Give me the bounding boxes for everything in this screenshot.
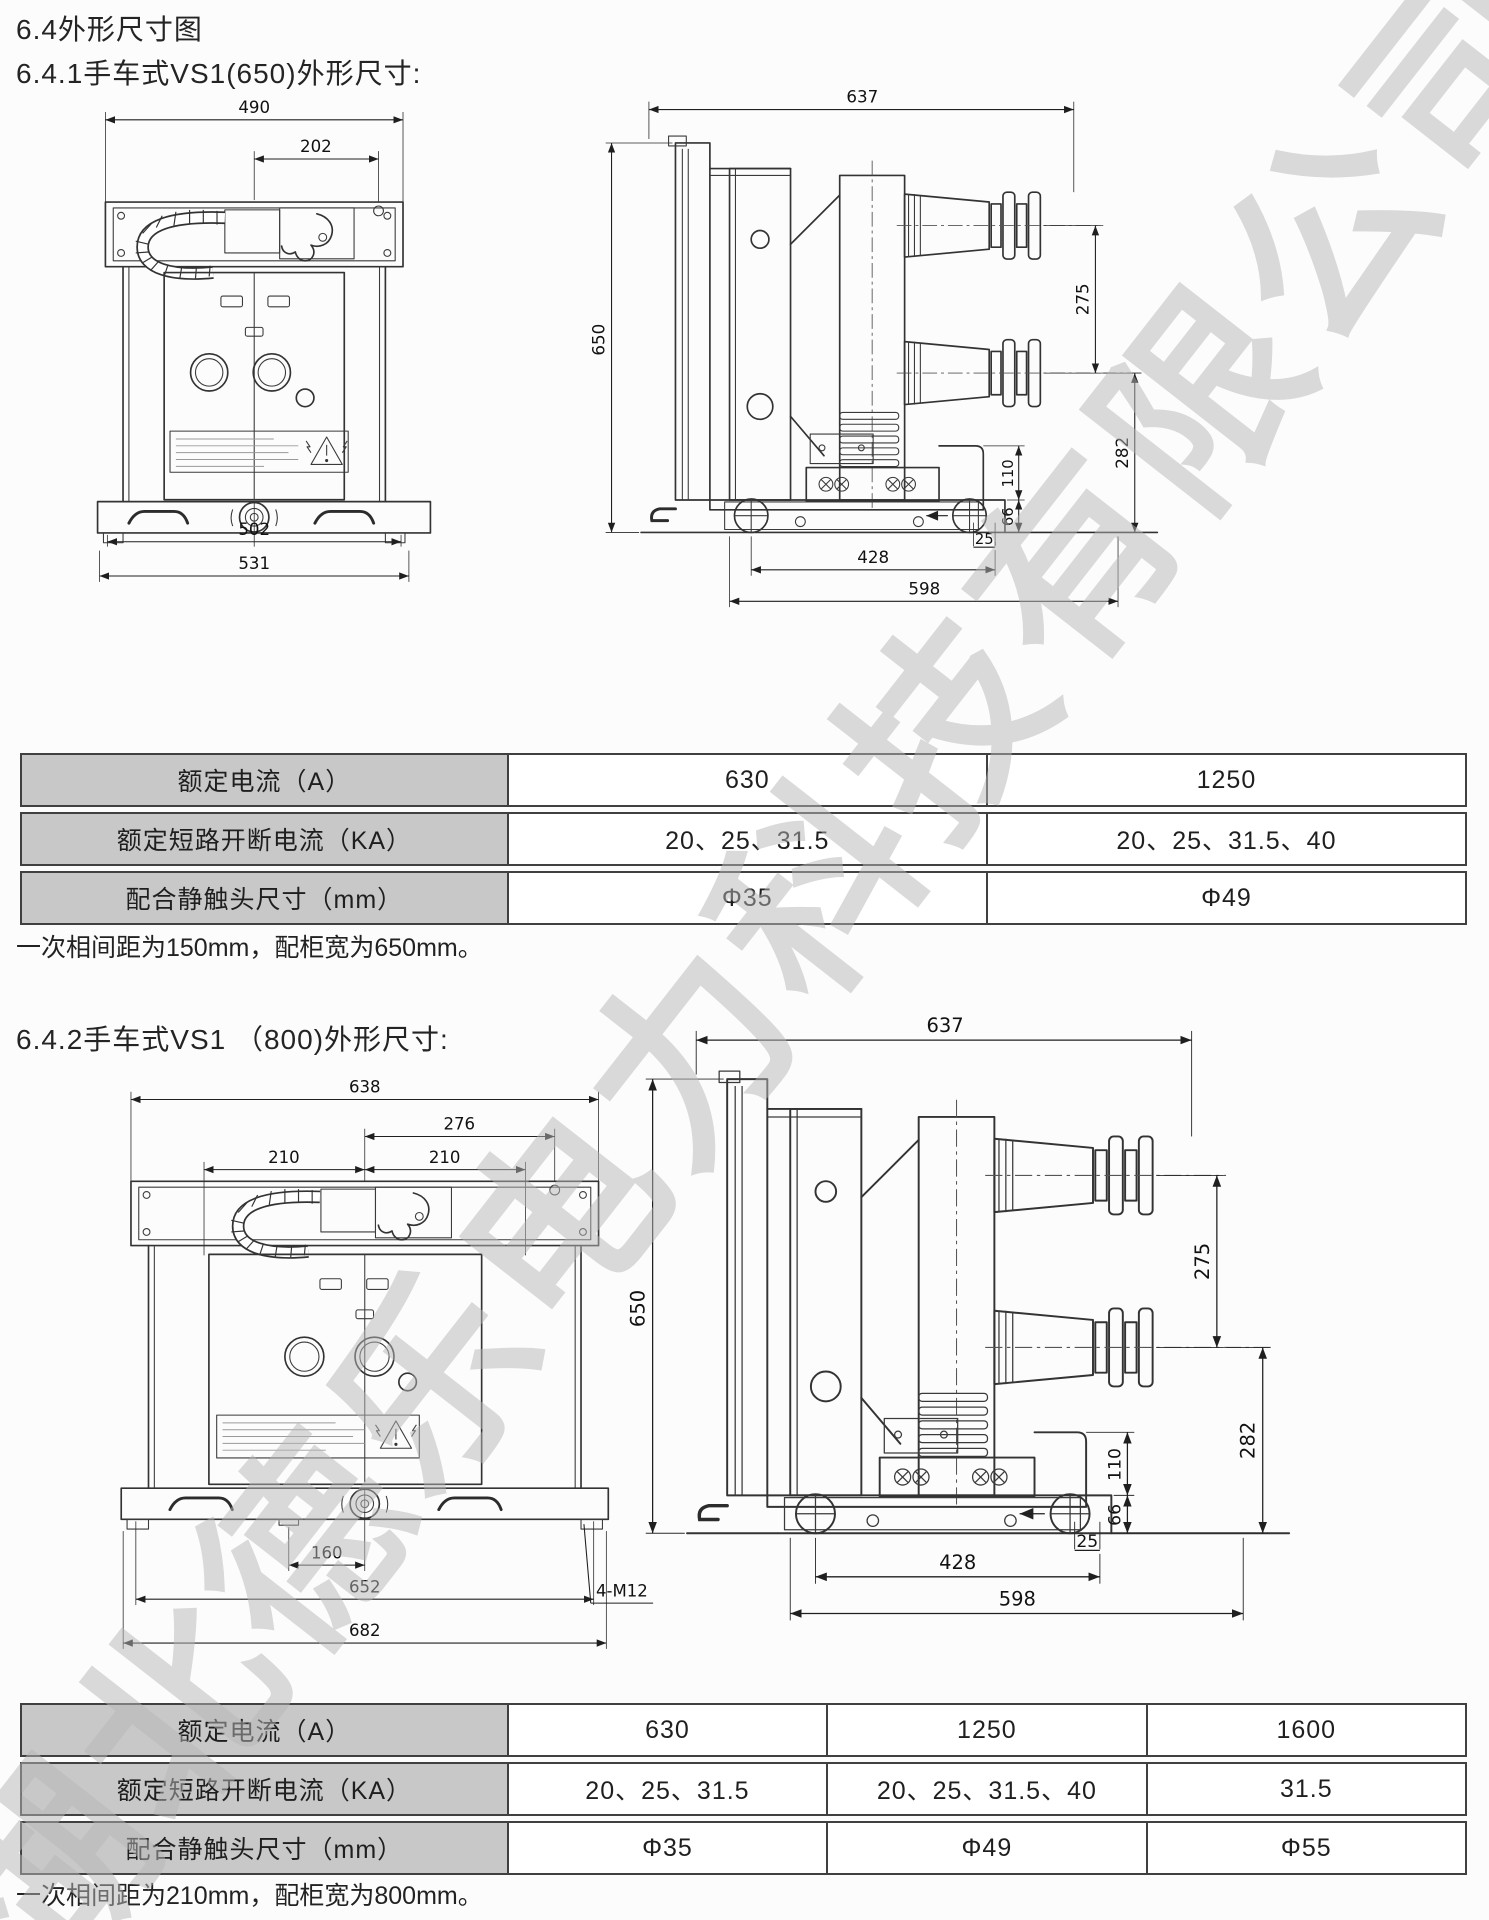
section-title-642: 6.4.2手车式VS1 （800)外形尺寸:	[16, 1018, 449, 1058]
table-cell: 31.5	[1148, 1762, 1467, 1816]
dimension-label: 110	[1106, 1448, 1126, 1481]
dimension-label: 502	[238, 520, 270, 539]
dimension-label: 650	[589, 324, 609, 356]
table-vs1-650-specs: 额定电流（A） 630 1250 额定短路开断电流（KA） 20、25、31.5…	[20, 753, 1467, 930]
dimension-label: 650	[627, 1290, 650, 1327]
dimension-label: 210	[429, 1148, 461, 1167]
bellows-glyph	[919, 1393, 988, 1456]
dimension-label: 682	[349, 1621, 381, 1640]
table-cell: 20、25、31.5、40	[828, 1762, 1147, 1816]
dimension-label: 428	[857, 547, 889, 567]
table-cell: Φ35	[509, 871, 988, 925]
row-label: 额定电流（A）	[20, 753, 509, 807]
dimension-label: 276	[443, 1115, 475, 1134]
table-cell: 1600	[1148, 1703, 1467, 1757]
lifting-hook-glyph	[378, 1193, 428, 1240]
table-cell: 20、25、31.5	[509, 812, 988, 866]
bellows-glyph	[840, 412, 899, 466]
table-row: 配合静触头尺寸（mm） Φ35 Φ49	[20, 871, 1467, 925]
dimension-label: 531	[238, 554, 270, 573]
dimension-label: 25	[1076, 1532, 1098, 1552]
dimension-label: 637	[846, 87, 878, 107]
table-cell: Φ55	[1148, 1821, 1467, 1875]
dimension-label: 202	[300, 137, 332, 156]
dimension-label: 282	[1237, 1422, 1260, 1459]
dimension-label: 637	[926, 1014, 963, 1037]
table-row: 额定短路开断电流（KA） 20、25、31.5 20、25、31.5、40 31…	[20, 1762, 1467, 1816]
table-cell: 1250	[828, 1703, 1147, 1757]
figure-vs1-650-front-view: 490 202	[78, 92, 450, 597]
table-row: 额定电流（A） 630 1250	[20, 753, 1467, 807]
table-row: 配合静触头尺寸（mm） Φ35 Φ49 Φ55	[20, 1821, 1467, 1875]
dimension-label: 66	[1000, 507, 1017, 526]
row-label: 配合静触头尺寸（mm）	[20, 1821, 509, 1875]
nameplate	[217, 1415, 420, 1458]
dimension-label: 598	[908, 578, 940, 598]
table-cell: 1250	[988, 753, 1467, 807]
note-800: 一次相间距为210mm，配柜宽为800mm。	[16, 1876, 483, 1912]
table-row: 额定电流（A） 630 1250 1600	[20, 1703, 1467, 1757]
figure-vs1-650-side-view: 637 650	[582, 82, 1182, 618]
row-label: 额定短路开断电流（KA）	[20, 812, 509, 866]
table-cell: Φ49	[988, 871, 1467, 925]
section-title-641: 6.4.1手车式VS1(650)外形尺寸:	[16, 52, 421, 92]
dimension-label: 638	[349, 1078, 381, 1097]
figure-vs1-800-side-view: 637 650	[618, 1008, 1318, 1633]
dimension-label: 66	[1106, 1504, 1126, 1526]
dimension-label: 25	[975, 531, 994, 548]
manual-page: 6.4外形尺寸图 6.4.1手车式VS1(650)外形尺寸: 490 202	[0, 0, 1489, 1920]
dimension-label: 282	[1112, 437, 1132, 469]
table-cell: 20、25、31.5、40	[988, 812, 1467, 866]
dimension-label: 160	[311, 1543, 343, 1562]
nameplate	[170, 431, 348, 472]
dimension-label: 275	[1073, 283, 1093, 315]
dimension-label: 110	[1000, 459, 1017, 487]
table-cell: 630	[509, 753, 988, 807]
dimension-label: 210	[268, 1148, 300, 1167]
table-vs1-800-specs: 额定电流（A） 630 1250 1600 额定短路开断电流（KA） 20、25…	[20, 1703, 1467, 1880]
hazard-warning-icon	[375, 1421, 416, 1448]
bolt-icons	[895, 1469, 1007, 1485]
table-cell: Φ49	[828, 1821, 1147, 1875]
row-label: 配合静触头尺寸（mm）	[20, 871, 509, 925]
note-650: 一次相间距为150mm，配柜宽为650mm。	[16, 928, 483, 964]
figure-vs1-800-front-view: 638 276 210 210	[92, 1072, 657, 1691]
dimension-label: 428	[939, 1551, 976, 1574]
dimension-label: 275	[1191, 1243, 1214, 1280]
bolt-icons	[819, 477, 915, 491]
dimension-label: 490	[238, 98, 270, 117]
flexible-conduit-glyph	[136, 210, 225, 279]
dimension-label: 598	[999, 1587, 1036, 1610]
table-cell: 630	[509, 1703, 828, 1757]
row-label: 额定电流（A）	[20, 1703, 509, 1757]
hazard-warning-icon	[306, 437, 347, 464]
dimension-label: 652	[349, 1577, 381, 1596]
table-cell: Φ35	[509, 1821, 828, 1875]
lifting-hook-glyph	[282, 214, 333, 261]
table-cell: 20、25、31.5	[509, 1762, 828, 1816]
flexible-conduit-glyph	[231, 1189, 320, 1257]
table-row: 额定短路开断电流（KA） 20、25、31.5 20、25、31.5、40	[20, 812, 1467, 866]
row-label: 额定短路开断电流（KA）	[20, 1762, 509, 1816]
section-title-64: 6.4外形尺寸图	[16, 8, 203, 48]
